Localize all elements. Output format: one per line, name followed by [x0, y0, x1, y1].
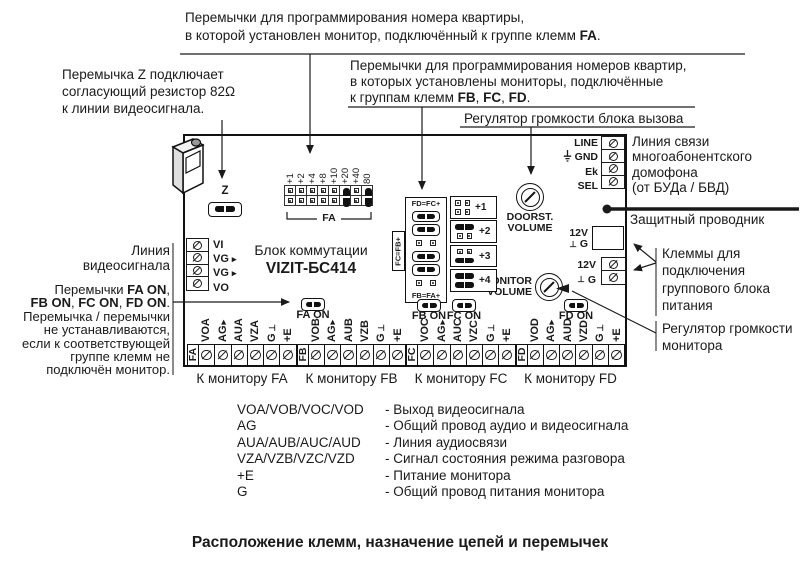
- screw-terminal: [418, 345, 433, 365]
- screw-terminal: [214, 345, 230, 365]
- chassis-ground-icon: ⊥: [595, 324, 605, 331]
- pin: [310, 188, 315, 193]
- terminal-label: VZC: [468, 308, 480, 342]
- legend-desc: - Линия аудиосвязи: [385, 435, 507, 451]
- terminal-label: G⊥: [594, 308, 606, 342]
- legend-term: VOA/VOB/VOC/VOD: [237, 402, 385, 418]
- pin: [354, 188, 359, 193]
- terminal-label: G⊥: [266, 308, 278, 342]
- legend-row: AG- Общий провод аудио и видеосигнала: [237, 418, 628, 434]
- monitor-terminal-group: FC: [406, 344, 516, 366]
- screw-terminal: [601, 270, 627, 285]
- pin: [467, 233, 473, 239]
- pin: [332, 188, 337, 193]
- diagram-title: Расположение клемм, назначение цепей и п…: [0, 534, 800, 552]
- terminal-label: VZB: [359, 308, 371, 342]
- pin: [465, 209, 471, 215]
- signal-arrow-icon: ▸: [437, 320, 447, 325]
- group-letter: FA: [188, 345, 199, 364]
- terminal-label: VOC: [419, 308, 431, 342]
- legend-row: G- Общий провод питания монитора: [237, 484, 628, 500]
- camera-device-icon: [166, 134, 208, 198]
- terminal-label: AG▸: [326, 308, 338, 342]
- group-letter: FC: [407, 345, 418, 364]
- group-caption: К монитору FC: [404, 371, 518, 386]
- note-bus-line: Линия связимногоабонентскогодомофона(от …: [632, 134, 752, 195]
- jumper: [412, 264, 440, 276]
- diagram-canvas: Перемычки для программирования номера кв…: [0, 0, 800, 583]
- pin: [416, 240, 422, 246]
- screw-terminal: [231, 345, 247, 365]
- bus-terminal-strip: [601, 136, 625, 189]
- board-name: Блок коммутации VIZIT-БС414: [238, 242, 384, 278]
- video-terminal-labels: VIVG▸VG▸VO: [213, 238, 236, 295]
- jumper: [455, 224, 474, 230]
- screw-terminal: [186, 276, 209, 290]
- legend: VOA/VOB/VOC/VOD- Выход видеосигналаAG- О…: [237, 402, 628, 500]
- legend-term: G: [237, 484, 385, 500]
- terminal-label: VOA: [200, 308, 212, 342]
- terminal-label: G⊥: [485, 308, 497, 342]
- pin: [416, 280, 422, 286]
- power-socket-labels: 12V⊥G: [554, 227, 588, 250]
- legend-row: VOA/VOB/VOC/VOD- Выход видеосигнала: [237, 402, 628, 418]
- pin: [430, 240, 436, 246]
- legend-term: AUA/AUB/AUC/AUD: [237, 435, 385, 451]
- terminal-label: VOD: [529, 308, 541, 342]
- terminal-label: +E: [611, 308, 623, 342]
- screw-terminal: [498, 345, 514, 365]
- power-socket: [592, 226, 624, 250]
- screw-terminal: [543, 345, 559, 365]
- terminal-label: +E: [501, 308, 513, 342]
- jumper: [208, 202, 242, 217]
- screw-terminal: [528, 345, 543, 365]
- legend-row: AUA/AUB/AUC/AUD- Линия аудиосвязи: [237, 435, 628, 451]
- terminal-label: AG▸: [545, 308, 557, 342]
- signal-arrow-icon: ▸: [218, 320, 228, 325]
- screw-terminal: [263, 345, 279, 365]
- offset-unit-block: +2: [450, 220, 497, 243]
- legend-desc: - Общий провод аудио и видеосигнала: [385, 418, 628, 434]
- group-caption: К монитору FA: [185, 371, 299, 386]
- chassis-ground-icon: ⊥: [267, 324, 277, 331]
- legend-desc: - Питание монитора: [385, 468, 511, 484]
- monitor-terminal-group: FA: [187, 344, 297, 366]
- screw-terminal: [575, 345, 591, 365]
- fa-bracket-label: FA: [317, 212, 341, 224]
- screw-terminal: [482, 345, 498, 365]
- jumper: [455, 258, 474, 264]
- screw-terminal: [356, 345, 372, 365]
- terminal-label: AUD: [562, 308, 574, 342]
- pin: [288, 188, 293, 193]
- group-letter: FD: [517, 345, 528, 364]
- z-jumper-label: Z: [209, 185, 241, 197]
- screw-terminal: [247, 345, 263, 365]
- terminal-label: AUB: [343, 308, 355, 342]
- jumper: [455, 282, 474, 288]
- group-caption: К монитору FB: [295, 371, 409, 386]
- signal-arrow-icon: ▸: [546, 320, 556, 325]
- screw-terminal: [324, 345, 340, 365]
- board-name-line1: Блок коммутации: [238, 242, 384, 258]
- signal-arrow-icon: ▸: [232, 268, 237, 279]
- terminal-label: +E: [282, 308, 294, 342]
- jumper: [412, 251, 440, 263]
- pin: [465, 200, 471, 206]
- bus-terminal-labels: LINEGNDEkSEL: [536, 136, 598, 193]
- screw-terminal: [608, 345, 624, 365]
- jumper: [365, 188, 372, 207]
- note-z-jumper: Перемычка Z подключаетсогласующий резист…: [62, 66, 235, 117]
- pin: [310, 198, 315, 203]
- pin: [332, 198, 337, 203]
- chassis-ground-icon: ⊥: [486, 324, 496, 331]
- terminal-label: AG▸: [217, 308, 229, 342]
- terminal-label: VZD: [578, 308, 590, 342]
- offset-side-label-box: FC=FB+: [392, 231, 405, 271]
- offset-unit-block: +3: [450, 245, 497, 268]
- screw-terminal: [592, 345, 608, 365]
- note-fa-jumpers: Перемычки для программирования номера кв…: [185, 9, 601, 44]
- offset-label: FD=FC+: [406, 198, 446, 210]
- terminal-label: 80: [362, 154, 374, 184]
- legend-row: VZA/VZB/VZC/VZD- Сигнал состояния режима…: [237, 451, 628, 467]
- board-name-line2: VIZIT-БС414: [238, 260, 384, 278]
- pin: [457, 249, 463, 255]
- terminal-label: AG▸: [436, 308, 448, 342]
- screw-terminal: [433, 345, 449, 365]
- screw-terminal: [340, 345, 356, 365]
- pin: [288, 198, 293, 203]
- pin: [299, 198, 304, 203]
- fa-jumper-block: [285, 186, 373, 206]
- terminal-label: AUA: [233, 308, 245, 342]
- screw-terminal: [199, 345, 214, 365]
- offset-unit-block: +1: [450, 196, 497, 219]
- screw-terminal: [389, 345, 405, 365]
- jumper: [455, 273, 474, 279]
- legend-term: AG: [237, 418, 385, 434]
- offset-unit-block: +4: [450, 269, 497, 292]
- pin: [430, 280, 436, 286]
- signal-arrow-icon: ▸: [232, 254, 237, 265]
- legend-desc: - Сигнал состояния режима разговора: [385, 451, 625, 467]
- chassis-ground-icon: ⊥: [376, 324, 386, 331]
- screw-terminal: [559, 345, 575, 365]
- note-fbcd-jumpers: Перемычки для программирования номеров к…: [350, 58, 687, 106]
- jumper: [412, 224, 440, 236]
- pin: [457, 233, 463, 239]
- signal-arrow-icon: ▸: [327, 320, 337, 325]
- note-psu-terminals: Клеммы дляподключениягруппового блокапит…: [662, 245, 770, 314]
- jumper: [343, 188, 350, 207]
- note-on-jumpers: Перемычки FA ON,FB ON, FC ON, FD ON.Пере…: [0, 283, 170, 377]
- note-protective-wire: Защитный проводник: [630, 212, 764, 227]
- pin: [455, 200, 461, 206]
- screw-terminal: [601, 175, 625, 189]
- pin: [467, 249, 473, 255]
- jumper: [412, 211, 440, 223]
- note-video-line: Линиявидеосигнала: [40, 243, 170, 273]
- terminal-label: +E: [392, 308, 404, 342]
- power-terminal-strip: [601, 257, 627, 285]
- earth-ground-icon: [563, 150, 572, 165]
- z-jumper-wrap: [208, 199, 242, 217]
- pin: [455, 209, 461, 215]
- group-caption: К монитору FD: [514, 371, 628, 386]
- pin: [321, 188, 326, 193]
- on-jumper-label: FD ON: [554, 310, 598, 322]
- terminal-label: AUC: [452, 308, 464, 342]
- group-letter: FB: [298, 345, 309, 364]
- legend-desc: - Выход видеосигнала: [385, 402, 525, 418]
- chassis-ground-icon: ⊥: [577, 274, 584, 285]
- legend-desc: - Общий провод питания монитора: [385, 484, 604, 500]
- screw-terminal: [450, 345, 466, 365]
- doorstation-volume-label: DOORST. VOLUME: [501, 212, 559, 233]
- pin: [299, 188, 304, 193]
- pin: [354, 198, 359, 203]
- note-call-unit-volume: Регулятор громкости блока вызова: [464, 111, 683, 127]
- offset-side-label: FC=FB+: [392, 232, 405, 272]
- screw-terminal: [279, 345, 295, 365]
- chassis-ground-icon: ⊥: [569, 239, 576, 250]
- video-terminal-strip: [186, 238, 209, 291]
- terminal-label: VOB: [310, 308, 322, 342]
- pin: [321, 198, 326, 203]
- monitor-terminal-group: FB: [297, 344, 407, 366]
- note-monitor-volume: Регулятор громкостимонитора: [662, 320, 793, 354]
- legend-row: +E- Питание монитора: [237, 468, 628, 484]
- terminal-label: VZA: [249, 308, 261, 342]
- power-terminal-labels: 12V⊥G: [554, 258, 596, 287]
- terminal-label: G⊥: [375, 308, 387, 342]
- legend-term: VZA/VZB/VZC/VZD: [237, 451, 385, 467]
- monitor-terminal-group: FD: [516, 344, 626, 366]
- offset-jumper-block: FD=FC+FB=FA+: [405, 197, 447, 303]
- legend-term: +E: [237, 468, 385, 484]
- screw-terminal: [466, 345, 482, 365]
- screw-terminal: [309, 345, 324, 365]
- screw-terminal: [373, 345, 389, 365]
